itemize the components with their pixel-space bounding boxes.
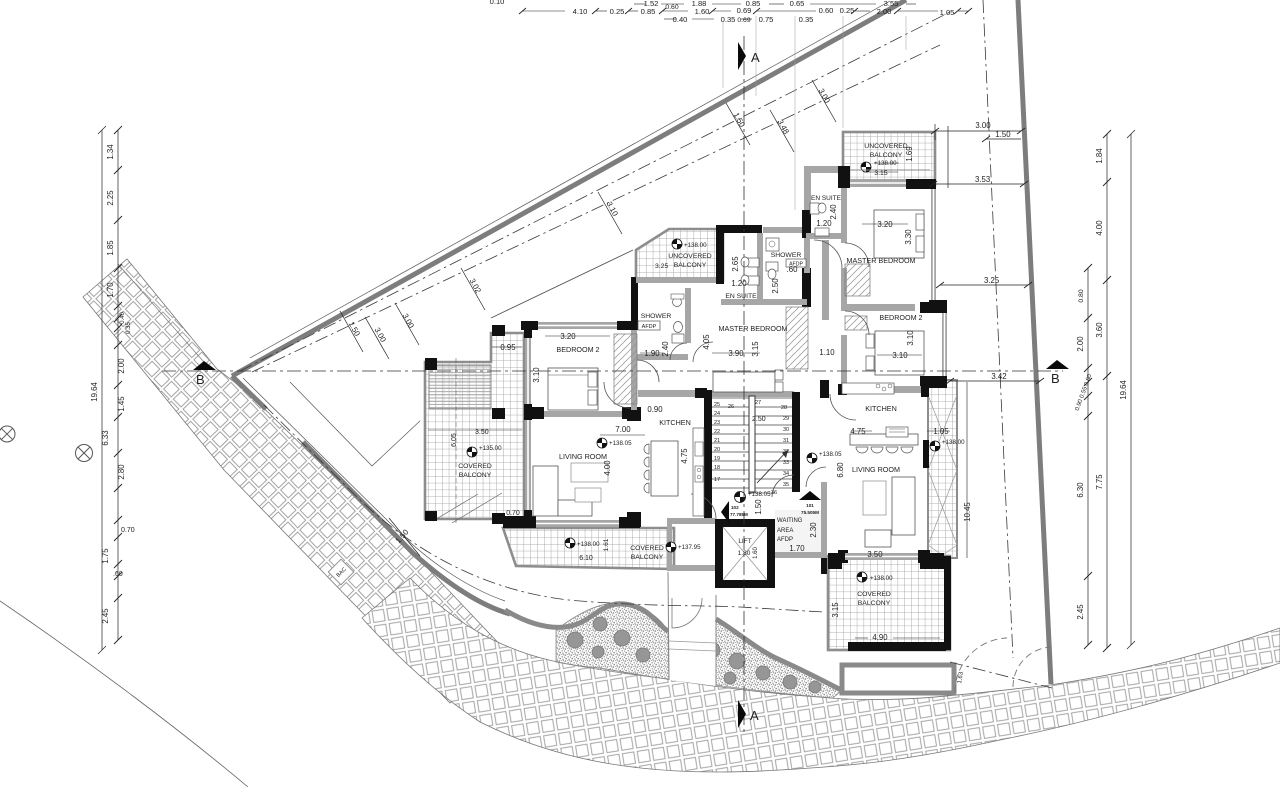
svg-text:UNCOVERED: UNCOVERED [864,143,908,150]
svg-text:102: 102 [731,505,739,510]
svg-text:1.61: 1.61 [603,538,610,551]
svg-text:23: 23 [714,420,720,426]
svg-text:AFDP: AFDP [777,537,793,543]
svg-text:0.60: 0.60 [819,6,834,15]
svg-text:KITCHEN: KITCHEN [865,404,897,413]
svg-text:1.20: 1.20 [731,279,747,288]
svg-text:35: 35 [783,482,789,488]
svg-text:20: 20 [714,447,720,453]
svg-text:LIVING ROOM: LIVING ROOM [852,465,900,474]
svg-text:3.10: 3.10 [906,330,915,346]
svg-text:BALCONY: BALCONY [674,262,707,269]
svg-text:19.64: 19.64 [90,382,99,402]
svg-text:+138.05: +138.05 [819,451,842,458]
svg-text:4.00: 4.00 [603,460,612,476]
svg-text:+138.05: +138.05 [609,440,632,447]
svg-text:2.30: 2.30 [809,522,818,538]
svg-text:KITCHEN: KITCHEN [659,418,691,427]
svg-text:EN SUITE: EN SUITE [811,195,842,202]
svg-text:0.80: 0.80 [1078,289,1085,302]
svg-text:27: 27 [755,400,761,406]
svg-text:.60: .60 [787,265,799,274]
svg-text:1.75: 1.75 [101,548,110,564]
svg-text:SHOWER: SHOWER [641,313,672,320]
svg-text:1.85: 1.85 [106,240,115,256]
svg-text:7.75: 7.75 [1095,474,1104,490]
svg-text:4.05: 4.05 [702,334,711,350]
svg-text:BALCONY: BALCONY [870,152,903,159]
svg-text:0.35: 0.35 [799,15,814,24]
svg-text:26: 26 [728,404,734,410]
svg-text:WAITING: WAITING [777,518,803,524]
svg-text:1.69: 1.69 [905,146,914,161]
svg-text:22: 22 [714,429,720,435]
svg-text:0.75: 0.75 [759,15,774,24]
svg-text:3.00: 3.00 [975,121,991,130]
svg-text:1.50: 1.50 [995,130,1011,139]
svg-text:0.25: 0.25 [840,6,855,15]
svg-text:1.45: 1.45 [117,396,126,412]
svg-text:3.20: 3.20 [560,332,576,341]
svg-text:29: 29 [783,416,789,422]
svg-text:BEDROOM 2: BEDROOM 2 [879,313,922,322]
svg-text:3.53: 3.53 [975,175,990,184]
svg-text:+138.00: +138.00 [684,242,707,249]
svg-text:4.75: 4.75 [680,448,689,464]
svg-text:0.95: 0.95 [500,343,516,352]
svg-text:2.00: 2.00 [877,7,892,16]
svg-text:1.34: 1.34 [106,144,115,160]
svg-text:A: A [750,708,759,723]
svg-text:1.84: 1.84 [1095,148,1104,164]
svg-text:1.60: 1.60 [753,547,759,559]
svg-text:2.00: 2.00 [1076,336,1085,352]
svg-text:3.30: 3.30 [904,229,913,245]
svg-text:COVERED: COVERED [857,591,891,598]
svg-text:MASTER BEDROOM: MASTER BEDROOM [718,324,787,333]
svg-text:7.00: 7.00 [615,425,631,434]
svg-text:19.64: 19.64 [1119,380,1128,400]
svg-text:0.90: 0.90 [647,405,663,414]
svg-text:4.00: 4.00 [1095,220,1104,236]
svg-text:1.05: 1.05 [933,427,949,436]
svg-text:3.25: 3.25 [984,276,1000,285]
svg-text:B: B [196,372,205,387]
svg-text:77.785M: 77.785M [730,512,748,517]
svg-text:2.40: 2.40 [829,204,838,220]
svg-text:COVERED: COVERED [458,463,492,470]
svg-text:UNCOVERED: UNCOVERED [668,253,712,260]
svg-text:+137.95: +137.95 [678,544,701,551]
svg-text:BALCONY: BALCONY [631,554,664,561]
svg-text:1.70: 1.70 [106,282,115,298]
svg-text:+138.00: +138.00 [870,575,893,582]
svg-text:EN SUITE: EN SUITE [725,293,757,300]
svg-text:3.60: 3.60 [1095,322,1104,338]
svg-text:2.50: 2.50 [771,278,780,294]
svg-text:B: B [1051,371,1060,386]
svg-text:17: 17 [714,477,720,483]
svg-text:3.90: 3.90 [728,349,744,358]
svg-text:6.10: 6.10 [579,555,593,562]
svg-text:AREA: AREA [777,528,793,534]
svg-text:0.69: 0.69 [737,6,752,15]
svg-text:6.33: 6.33 [101,430,110,445]
svg-text:0.10: 0.10 [490,0,505,6]
svg-text:1.90: 1.90 [644,349,660,358]
svg-text:3.15: 3.15 [751,341,760,357]
svg-text:6.80: 6.80 [836,462,845,478]
svg-text:18: 18 [714,465,720,471]
svg-text:33: 33 [783,460,789,466]
svg-text:24: 24 [714,411,720,417]
svg-text:+138.05: +138.05 [748,491,771,498]
svg-text:3.15: 3.15 [831,602,840,618]
svg-text:6.05: 6.05 [451,433,458,447]
svg-text:3.20: 3.20 [877,220,893,229]
svg-text:3.50: 3.50 [867,550,883,559]
svg-text:19: 19 [714,456,720,462]
svg-text:2.65: 2.65 [731,256,740,272]
svg-text:2.50: 2.50 [752,416,766,423]
svg-text:21: 21 [714,438,720,444]
svg-text:4.75: 4.75 [850,427,866,436]
svg-text:3.15: 3.15 [874,170,887,177]
svg-text:LIFT: LIFT [738,538,751,545]
svg-text:A: A [751,50,760,65]
svg-text:LIVING ROOM: LIVING ROOM [559,452,607,461]
svg-text:3.10: 3.10 [892,351,908,360]
svg-text:COVERED: COVERED [630,545,664,552]
svg-text:2.40: 2.40 [661,341,670,357]
svg-text:2.00: 2.00 [117,358,126,374]
svg-text:10.45: 10.45 [963,502,972,522]
svg-text:BALCONY: BALCONY [459,472,492,479]
svg-text:+135.00: +135.00 [479,445,502,452]
svg-text:6.30: 6.30 [1076,482,1085,498]
svg-text:101: 101 [806,503,814,508]
svg-text:AFDP: AFDP [642,324,657,330]
svg-text:2.45: 2.45 [101,608,110,624]
svg-text:1.05: 1.05 [940,8,955,17]
svg-text:31: 31 [783,438,789,444]
svg-text:BEDROOM 2: BEDROOM 2 [556,345,599,354]
svg-text:0.40: 0.40 [673,15,688,24]
svg-text:BALCONY: BALCONY [858,600,891,607]
svg-text:32: 32 [783,449,789,455]
svg-text:SHOWER: SHOWER [771,252,802,259]
svg-text:1.60: 1.60 [695,7,710,16]
svg-text:+138.00: +138.00 [942,439,965,446]
svg-text:3.50: 3.50 [475,429,489,436]
svg-text:.60: .60 [113,571,123,578]
svg-text:+138.00: +138.00 [577,541,600,548]
svg-text:0.60: 0.60 [665,4,678,11]
svg-text:0.70: 0.70 [121,527,135,534]
svg-text:0.85: 0.85 [641,7,656,16]
svg-text:0.65: 0.65 [790,0,805,8]
svg-text:0.35: 0.35 [126,322,132,334]
svg-text:4.90: 4.90 [872,633,888,642]
svg-text:75.505M: 75.505M [801,510,819,515]
svg-text:2.80: 2.80 [117,464,126,480]
svg-text:0.70: 0.70 [506,510,520,517]
svg-text:0.25: 0.25 [610,7,625,16]
svg-text:0.40: 0.40 [120,312,126,324]
svg-text:1.10: 1.10 [819,348,835,357]
svg-text:0.69: 0.69 [737,17,750,24]
svg-text:3.10: 3.10 [532,367,541,383]
svg-text:28: 28 [781,405,787,411]
svg-text:3.42: 3.42 [991,372,1006,381]
svg-text:2.25: 2.25 [106,190,115,206]
svg-text:1.70: 1.70 [789,544,805,553]
svg-text:25: 25 [714,402,720,408]
svg-text:+138.00: +138.00 [874,160,897,167]
svg-text:30: 30 [783,427,789,433]
svg-text:2.45: 2.45 [1076,604,1085,620]
svg-text:4.10: 4.10 [573,7,588,16]
svg-text:1.50: 1.50 [754,499,763,515]
svg-text:3.25: 3.25 [655,263,668,270]
